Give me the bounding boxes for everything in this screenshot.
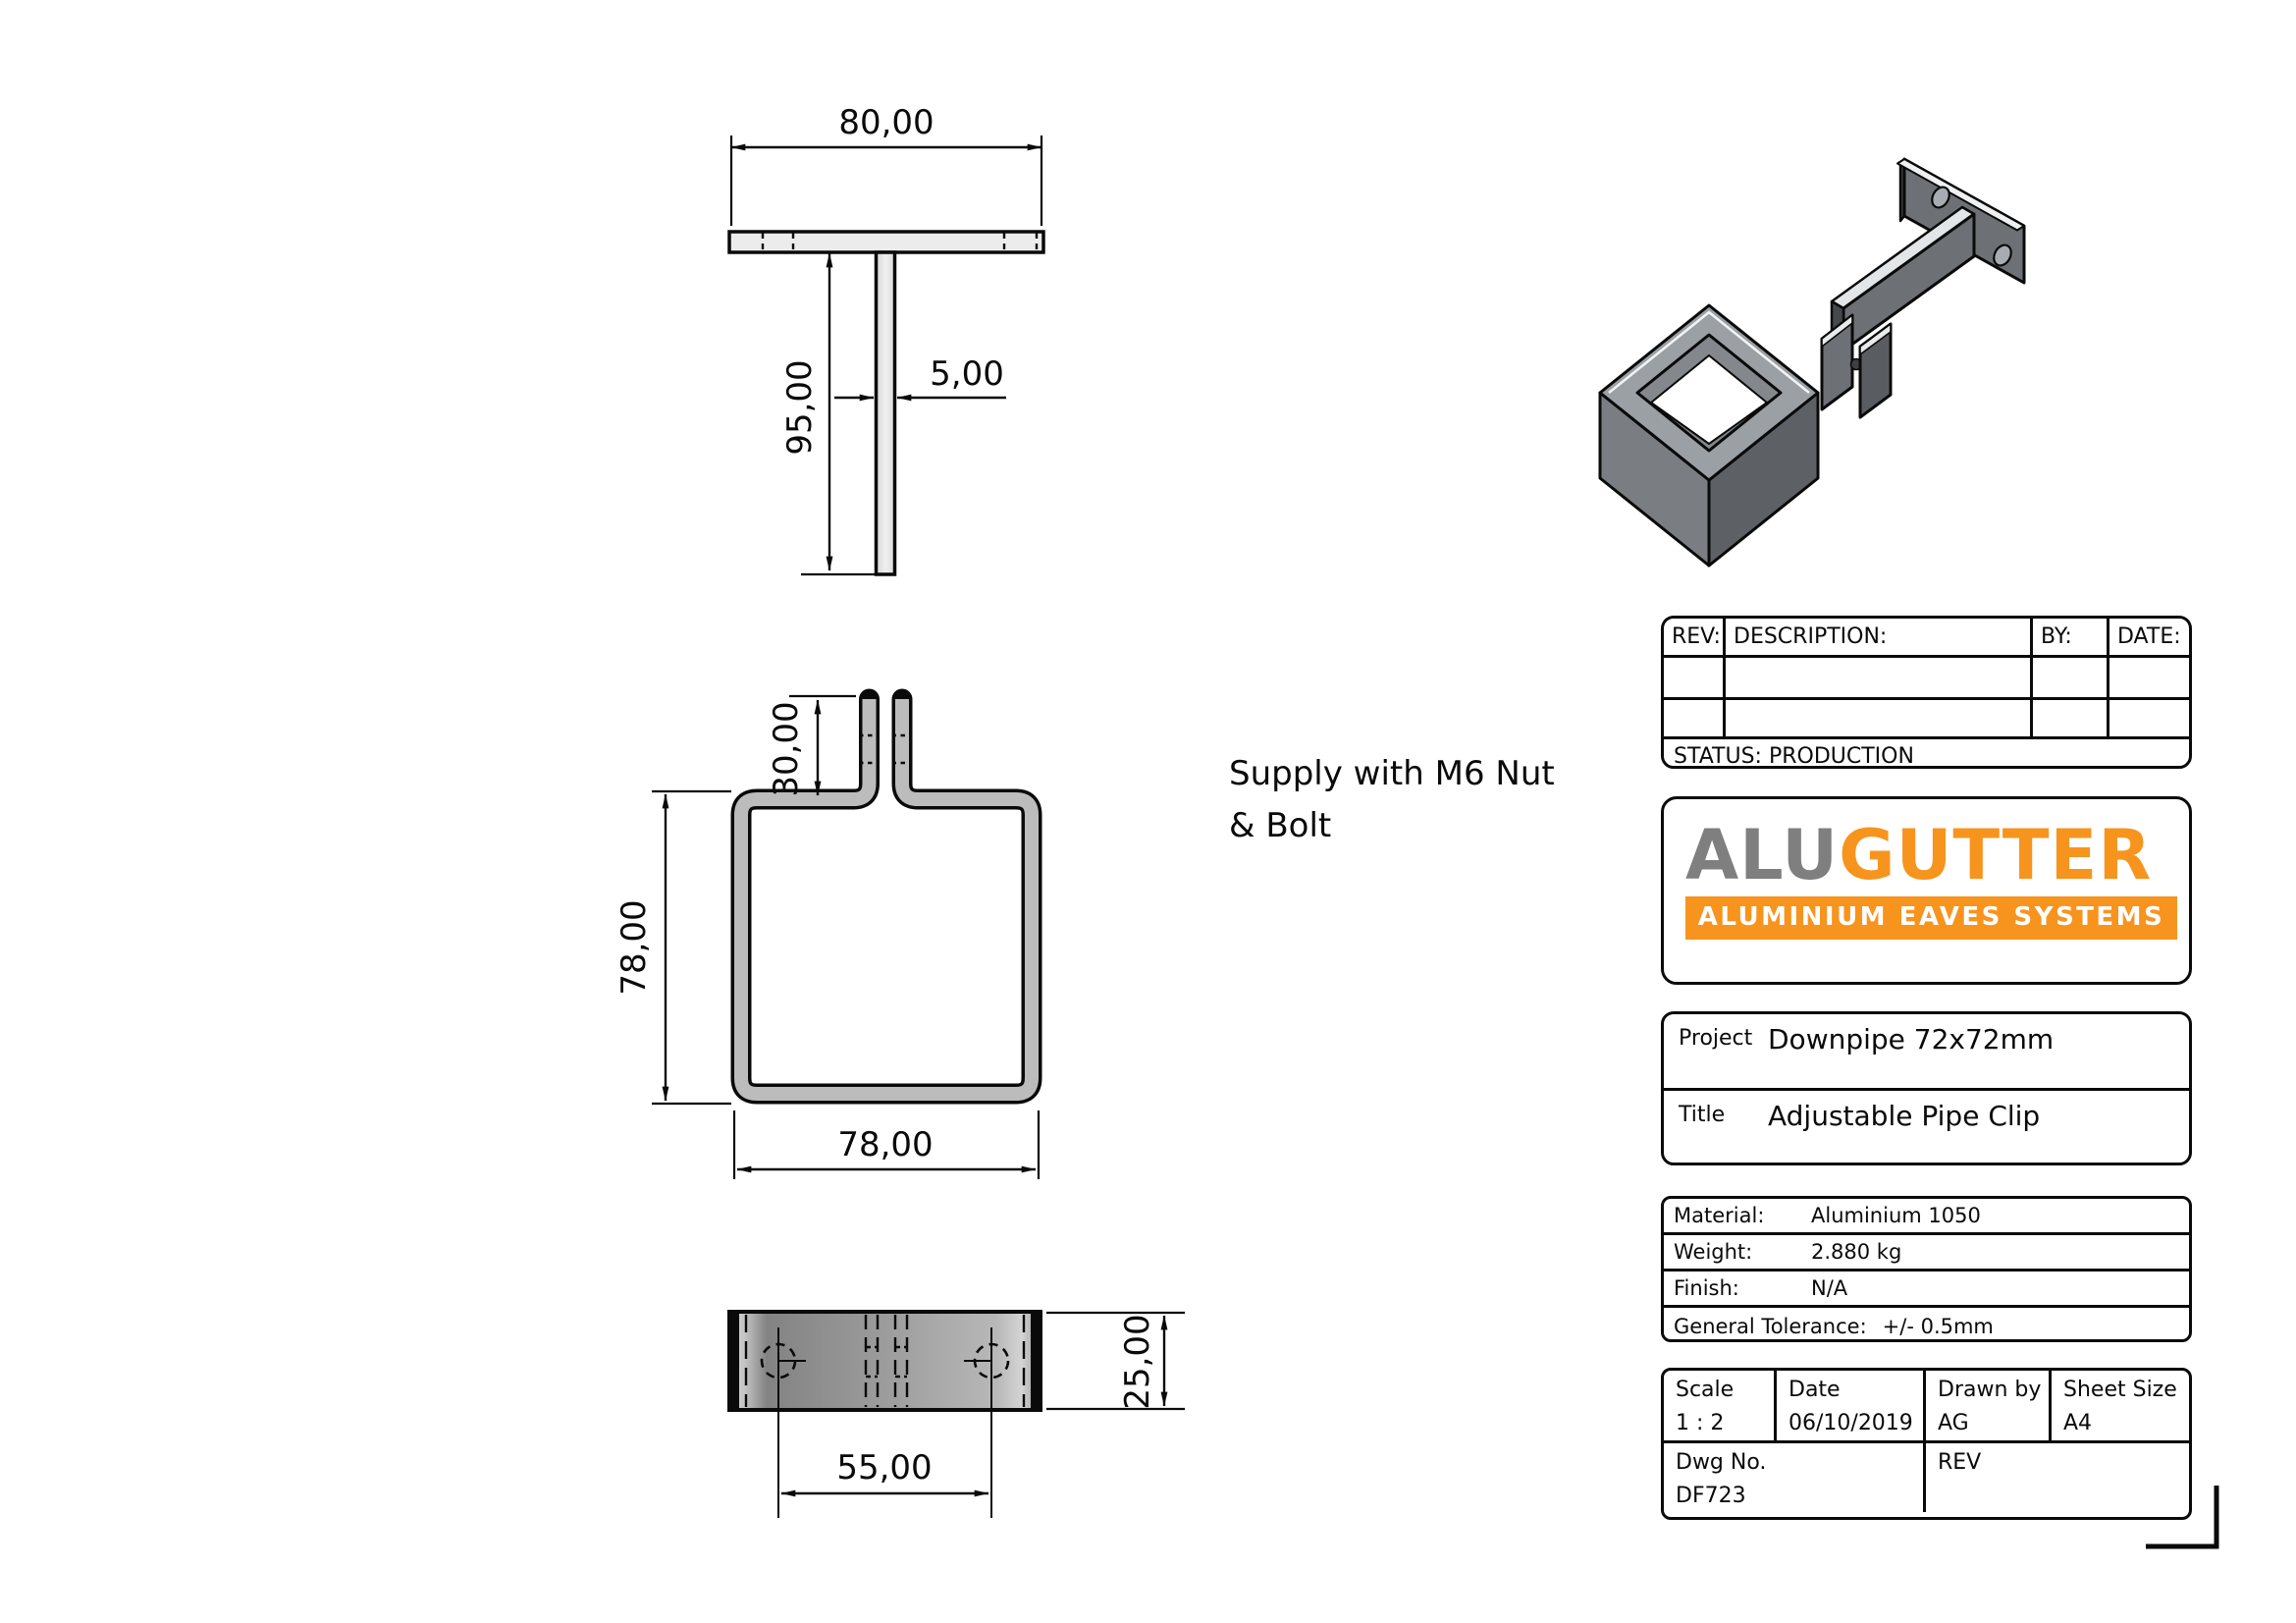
title-row: Title Adjustable Pipe Clip xyxy=(1664,1091,2189,1164)
scale-cell: Scale 1 : 2 xyxy=(1664,1371,1774,1440)
finish-value: N/A xyxy=(1811,1276,1847,1300)
scale-label: Scale xyxy=(1676,1378,1774,1402)
tolerance-value: +/- 0.5mm xyxy=(1883,1315,1994,1338)
date-label: Date xyxy=(1789,1378,1923,1402)
brand-tagline: ALUMINIUM EAVES SYSTEMS xyxy=(1685,896,2177,940)
weight-label: Weight: xyxy=(1664,1240,1811,1264)
title-value: Adjustable Pipe Clip xyxy=(1768,1100,2040,1132)
dim-prong-height: 30,00 xyxy=(767,701,806,796)
tolerance-label: General Tolerance: xyxy=(1664,1315,1867,1338)
spec-row-tolerance: General Tolerance: +/- 0.5mm xyxy=(1664,1308,2189,1344)
end-cap-right xyxy=(1031,1312,1041,1410)
view-bottom: 55,00 25,00 xyxy=(729,1312,1185,1518)
scale-value: 1 : 2 xyxy=(1676,1411,1774,1435)
spec-row-weight: Weight: 2.880 kg xyxy=(1664,1235,2189,1271)
material-label: Material: xyxy=(1664,1204,1811,1227)
finish-label: Finish: xyxy=(1664,1276,1811,1300)
revision-row-empty xyxy=(1664,700,2189,739)
brand-alu: ALU xyxy=(1685,815,1839,895)
dim-stem-length: 95,00 xyxy=(780,359,820,455)
dwg-no-label: Dwg No. xyxy=(1676,1450,1923,1475)
dim-front-width: 78,00 xyxy=(837,1125,933,1164)
info-row-1: Scale 1 : 2 Date 06/10/2019 Drawn by AG … xyxy=(1664,1371,2189,1443)
specs-box: Material: Aluminium 1050 Weight: 2.880 k… xyxy=(1661,1196,2192,1342)
brand-gutter: GUTTER xyxy=(1839,815,2152,895)
view-front-profile: 30,00 78,00 78,00 xyxy=(614,696,1039,1179)
description-header: DESCRIPTION: xyxy=(1723,619,2030,655)
note-line-2: & Bolt xyxy=(1229,800,1555,852)
date-cell: Date 06/10/2019 xyxy=(1774,1371,1923,1440)
sheet-size-cell: Sheet Size A4 xyxy=(2049,1371,2189,1440)
revision-row-empty xyxy=(1664,658,2189,700)
weight-value: 2.880 kg xyxy=(1811,1240,1901,1264)
drawn-by-value: AG xyxy=(1938,1411,2049,1435)
rev-label: REV xyxy=(1938,1450,2189,1475)
date-value: 06/10/2019 xyxy=(1789,1411,1923,1435)
rev-header: REV: xyxy=(1664,619,1723,655)
drawn-by-cell: Drawn by AG xyxy=(1923,1371,2049,1440)
revision-table: REV: DESCRIPTION: BY: DATE: STATUS: PROD… xyxy=(1661,616,2192,769)
sheet-size-value: A4 xyxy=(2063,1411,2189,1435)
bottom-body xyxy=(729,1312,1041,1410)
project-row: Project Downpipe 72x72mm xyxy=(1664,1014,2189,1091)
rev-cell: REV xyxy=(1923,1443,2189,1512)
project-value: Downpipe 72x72mm xyxy=(1768,1023,2054,1055)
material-value: Aluminium 1050 xyxy=(1811,1204,1981,1227)
note-line-1: Supply with M6 Nut xyxy=(1229,748,1555,800)
dim-top-width: 80,00 xyxy=(838,103,934,142)
spec-row-material: Material: Aluminium 1050 xyxy=(1664,1199,2189,1235)
logo-box: ALUGUTTER ALUMINIUM EAVES SYSTEMS xyxy=(1661,796,2192,985)
info-row-2: Dwg No. DF723 REV xyxy=(1664,1443,2189,1512)
dim-stem-thickness: 5,00 xyxy=(930,354,1004,394)
title-label: Title xyxy=(1679,1103,1725,1127)
sheet-size-label: Sheet Size xyxy=(2063,1378,2189,1402)
iso-view xyxy=(1600,159,2024,566)
iso-clip-ring xyxy=(1600,305,1818,566)
note-text: Supply with M6 Nut & Bolt xyxy=(1229,748,1555,851)
project-label: Project xyxy=(1679,1026,1752,1051)
by-header: BY: xyxy=(2030,619,2107,655)
dwg-no-cell: Dwg No. DF723 xyxy=(1664,1443,1923,1512)
project-title-box: Project Downpipe 72x72mm Title Adjustabl… xyxy=(1661,1011,2192,1165)
stem xyxy=(877,252,895,574)
top-plate xyxy=(729,232,1043,252)
date-header: DATE: xyxy=(2107,619,2189,655)
drawing-sheet: 80,00 95,00 5,00 xyxy=(0,0,2296,1623)
brand-wordmark: ALUGUTTER xyxy=(1664,799,2189,891)
dim-front-height: 78,00 xyxy=(614,899,654,995)
view-top-section: 80,00 95,00 5,00 xyxy=(729,103,1043,574)
dim-depth: 25,00 xyxy=(1118,1314,1157,1409)
revision-header-row: REV: DESCRIPTION: BY: DATE: xyxy=(1664,619,2189,658)
dwg-no-value: DF723 xyxy=(1676,1484,1923,1508)
drawn-by-label: Drawn by xyxy=(1938,1378,2049,1402)
dim-hole-spacing: 55,00 xyxy=(836,1448,932,1488)
status-text: STATUS: PRODUCTION xyxy=(1664,739,2189,773)
spec-row-finish: Finish: N/A xyxy=(1664,1271,2189,1308)
end-cap-left xyxy=(729,1312,739,1410)
info-table: Scale 1 : 2 Date 06/10/2019 Drawn by AG … xyxy=(1661,1368,2192,1520)
